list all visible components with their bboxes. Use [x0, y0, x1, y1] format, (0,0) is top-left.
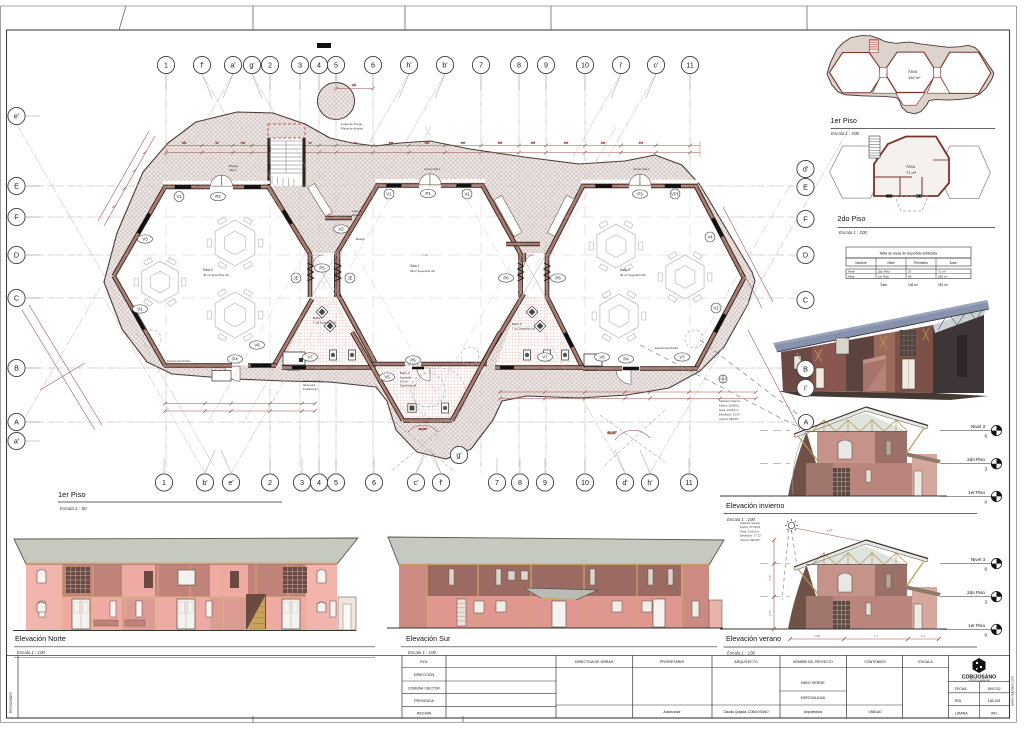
- svg-text:d': d': [622, 478, 628, 487]
- svg-text:g': g': [456, 451, 462, 460]
- svg-text:60.00°: 60.00°: [607, 431, 617, 435]
- svg-text:Baño 1: Baño 1: [313, 316, 323, 320]
- svg-text:Total: Total: [880, 283, 887, 287]
- svg-text:Nivel 3: Nivel 3: [971, 424, 985, 429]
- svg-text:4: 4: [317, 478, 321, 487]
- svg-text:2do Piso: 2do Piso: [967, 590, 985, 595]
- svg-text:www.cobijosano.com: www.cobijosano.com: [1011, 676, 1015, 706]
- svg-text:ARQUITECTO: ARQUITECTO: [734, 660, 758, 664]
- svg-text:B: B: [14, 364, 19, 373]
- svg-text:Nivel: Nivel: [887, 261, 894, 265]
- svg-text:V1: V1: [176, 194, 182, 199]
- svg-text:Arquitectura: Arquitectura: [804, 710, 822, 714]
- svg-text:Accesible: Accesible: [400, 376, 412, 380]
- svg-text:9: 9: [544, 61, 548, 70]
- svg-text:10: 10: [581, 478, 589, 487]
- svg-text:UNIDAD: UNIDAD: [869, 710, 883, 714]
- svg-text:b': b': [202, 478, 208, 487]
- svg-text:Acceso Sala 1: Acceso Sala 1: [424, 167, 441, 171]
- svg-text:7: 7: [479, 61, 483, 70]
- svg-text:8: 8: [517, 61, 521, 70]
- svg-text:h': h': [406, 61, 412, 70]
- svg-text:V1: V1: [137, 307, 143, 312]
- svg-text:Área: Área: [906, 164, 916, 169]
- svg-text:Autorizador: Autorizador: [663, 710, 681, 714]
- svg-text:5: 5: [334, 478, 338, 487]
- svg-text:ESCALA: ESCALA: [918, 660, 933, 664]
- svg-text:1er Piso: 1er Piso: [878, 275, 889, 279]
- svg-text:Elevación Norte: Elevación Norte: [15, 634, 66, 643]
- svg-text:V6: V6: [254, 343, 260, 348]
- svg-text:P1: P1: [425, 191, 431, 196]
- svg-text:2.75: 2.75: [768, 610, 772, 616]
- svg-text:46 m² Superficie útil: 46 m² Superficie útil: [620, 273, 646, 277]
- svg-text:Claudio Quijada, COBIJOSANO: Claudio Quijada, COBIJOSANO: [723, 710, 769, 714]
- svg-text:d': d': [803, 165, 809, 174]
- svg-text:Escala 1 : 200: Escala 1 : 200: [839, 230, 867, 235]
- svg-text:6: 6: [371, 61, 375, 70]
- svg-text:ESPECIALIDAD: ESPECIALIDAD: [801, 696, 826, 700]
- svg-text:46m² Superficie útil: 46m² Superficie útil: [410, 269, 435, 273]
- svg-text:NOMBRE DEL PROYECTO: NOMBRE DEL PROYECTO: [793, 660, 833, 664]
- svg-text:7 m2 Superficie útil: 7 m2 Superficie útil: [512, 327, 535, 331]
- svg-text:Perímetro: Perímetro: [914, 261, 928, 265]
- svg-text:Lugar de Fuego: Lugar de Fuego: [341, 122, 363, 126]
- svg-text:FECHA: FECHA: [955, 687, 967, 691]
- svg-text:Nombre: Nombre: [855, 261, 867, 265]
- svg-text:Escala 1 : 100: Escala 1 : 100: [17, 650, 45, 655]
- svg-text:ROL: ROL: [955, 699, 962, 703]
- svg-text:Tabla de areas de Superficie E: Tabla de areas de Superficie Edificada: [879, 252, 937, 256]
- svg-text:37: 37: [908, 270, 912, 274]
- svg-text:A: A: [804, 420, 809, 427]
- svg-text:4: 4: [317, 61, 321, 70]
- svg-text:A: A: [14, 418, 19, 427]
- svg-text:h': h': [647, 478, 653, 487]
- svg-text:E: E: [14, 182, 19, 191]
- svg-text:Escala 1 : 50: Escala 1 : 50: [60, 506, 87, 511]
- svg-text:C: C: [803, 296, 808, 305]
- svg-text:PROPIETARIO: PROPIETARIO: [660, 660, 684, 664]
- svg-text:V1: V1: [713, 306, 719, 311]
- svg-text:Acceso Sala 3: Acceso Sala 3: [633, 167, 650, 171]
- svg-text:Kitchenette: Kitchenette: [584, 369, 597, 372]
- svg-text:Sala 2: Sala 2: [229, 168, 237, 172]
- svg-text:5: 5: [334, 61, 338, 70]
- svg-text:g': g': [249, 61, 255, 70]
- svg-text:A#1: A#1: [991, 712, 997, 716]
- svg-text:1er Piso: 1er Piso: [58, 490, 86, 499]
- svg-text:Baño 3: Baño 3: [400, 371, 410, 375]
- svg-text:Elevación verano: Elevación verano: [726, 634, 781, 643]
- svg-text:DIRECCIÓN: DIRECCIÓN: [414, 672, 435, 677]
- svg-text:Plaza de Acceso: Plaza de Acceso: [341, 127, 364, 131]
- svg-text:2do Piso: 2do Piso: [878, 270, 890, 274]
- svg-text:7: 7: [495, 478, 499, 487]
- svg-text:D: D: [14, 251, 19, 260]
- svg-text:1er Piso: 1er Piso: [831, 116, 857, 125]
- svg-text:Sala 1: Sala 1: [410, 264, 420, 268]
- svg-text:V3: V3: [142, 237, 148, 242]
- svg-text:7.1: 7.1: [874, 634, 878, 638]
- svg-text:V7: V7: [679, 355, 685, 360]
- svg-text:ROL: ROL: [420, 660, 427, 664]
- svg-text:P3: P3: [637, 192, 643, 197]
- svg-text:REVISIONES: REVISIONES: [9, 692, 13, 713]
- svg-text:7 m2 Superficie útil: 7 m2 Superficie útil: [313, 321, 336, 325]
- svg-text:1: 1: [164, 61, 168, 70]
- svg-text:Escala 1 : 100: Escala 1 : 100: [408, 650, 436, 655]
- svg-text:F: F: [14, 213, 19, 222]
- svg-text:Área: Área: [908, 69, 918, 74]
- svg-text:PROVINCIA: PROVINCIA: [414, 699, 434, 703]
- svg-text:V4: V4: [707, 235, 713, 240]
- svg-text:6: 6: [984, 434, 987, 439]
- svg-text:P5: P5: [319, 266, 325, 271]
- svg-text:46 m² Superficie útil: 46 m² Superficie útil: [203, 273, 229, 277]
- svg-text:E: E: [803, 183, 808, 192]
- svg-text:2: 2: [268, 478, 272, 487]
- svg-text:Espacio para Rocket: Espacio para Rocket: [655, 347, 678, 350]
- svg-text:CONTENIDO: CONTENIDO: [864, 660, 886, 664]
- svg-text:NIDO VERDE: NIDO VERDE: [801, 681, 825, 685]
- svg-text:e': e': [14, 112, 20, 121]
- svg-text:P6: P6: [410, 358, 416, 363]
- svg-text:DIRECTIVA DE OBRAS: DIRECTIVA DE OBRAS: [575, 660, 614, 664]
- svg-text:15/07/22: 15/07/22: [987, 687, 1000, 691]
- svg-text:Chafl o Gabinete: Chafl o Gabinete: [303, 380, 322, 383]
- svg-text:Sala 2: Sala 2: [203, 268, 213, 272]
- svg-text:251 m²: 251 m²: [938, 283, 948, 287]
- svg-text:180 m²: 180 m²: [908, 75, 921, 80]
- svg-text:Escala 1 : 200: Escala 1 : 200: [831, 131, 859, 136]
- svg-text:6: 6: [372, 478, 376, 487]
- svg-text:2.2: 2.2: [921, 634, 925, 638]
- svg-text:106 m²: 106 m²: [908, 283, 918, 287]
- svg-text:Azimut: 336.96°: Azimut: 336.96°: [719, 417, 739, 421]
- svg-text:1: 1: [162, 478, 166, 487]
- svg-text:V7: V7: [307, 355, 313, 360]
- svg-text:c': c': [414, 478, 420, 487]
- svg-text:F: F: [803, 215, 808, 224]
- svg-text:V7: V7: [542, 355, 548, 360]
- svg-text:0: 0: [984, 632, 987, 637]
- svg-text:B: B: [803, 365, 808, 374]
- svg-text:2do Piso: 2do Piso: [838, 214, 866, 223]
- svg-text:2.79: 2.79: [768, 575, 772, 581]
- svg-text:11: 11: [686, 61, 693, 70]
- svg-text:1er Piso: 1er Piso: [968, 623, 985, 628]
- svg-text:71 m²: 71 m²: [938, 270, 946, 274]
- svg-text:5.0 m²: 5.0 m²: [400, 380, 408, 384]
- svg-text:9: 9: [543, 478, 547, 487]
- svg-text:falsos para: falsos para: [303, 384, 316, 387]
- svg-text:V2: V2: [338, 227, 344, 232]
- svg-text:7.46: 7.46: [422, 253, 428, 257]
- svg-text:JE: JE: [294, 276, 299, 281]
- svg-text:c': c': [654, 61, 660, 70]
- svg-text:Bodega: Bodega: [356, 238, 365, 241]
- svg-text:P4: P4: [232, 357, 238, 362]
- svg-text:Bajada: Bajada: [352, 214, 360, 217]
- svg-text:69: 69: [908, 275, 912, 279]
- svg-text:Hora: 13:00 pm: Hora: 13:00 pm: [719, 408, 739, 412]
- svg-text:instalaciones: instalaciones: [303, 388, 318, 391]
- svg-text:3: 3: [298, 61, 302, 70]
- svg-text:180 m²: 180 m²: [938, 275, 947, 279]
- svg-text:P6: P6: [503, 276, 509, 281]
- svg-text:VP1: VP1: [671, 192, 680, 197]
- svg-text:Sala 3: Sala 3: [620, 268, 630, 272]
- svg-text:1er Piso: 1er Piso: [968, 490, 985, 495]
- svg-text:Azimut: 348.45°: Azimut: 348.45°: [740, 538, 760, 542]
- svg-text:3: 3: [300, 478, 304, 487]
- svg-text:158-193: 158-193: [988, 699, 1001, 703]
- svg-text:COMUNA / SECTOR: COMUNA / SECTOR: [408, 687, 440, 691]
- svg-text:Espacio para Rochet: Espacio para Rochet: [167, 360, 191, 363]
- svg-text:Fecha: 21/06/21: Fecha: 21/06/21: [719, 404, 740, 408]
- svg-text:JE: JE: [348, 276, 353, 281]
- svg-text:P2: P2: [215, 194, 221, 199]
- svg-text:2: 2: [268, 61, 272, 70]
- svg-text:0: 0: [984, 499, 987, 504]
- svg-text:6: 6: [984, 567, 987, 572]
- svg-text:a': a': [14, 437, 20, 446]
- svg-text:Área: Área: [848, 275, 855, 279]
- svg-text:3: 3: [984, 600, 987, 605]
- svg-text:Elevación invierno: Elevación invierno: [726, 501, 784, 510]
- svg-text:Kitchenette: Kitchenette: [287, 369, 300, 372]
- svg-text:Área: Área: [950, 261, 957, 265]
- svg-text:V6: V6: [599, 355, 605, 360]
- svg-text:10: 10: [581, 61, 589, 70]
- svg-text:Superficie útil: Superficie útil: [400, 384, 417, 388]
- svg-text:Solsticio Invierno: Solsticio Invierno: [719, 399, 741, 403]
- svg-text:Nivel 3: Nivel 3: [971, 557, 985, 562]
- svg-text:P4: P4: [623, 357, 629, 362]
- svg-text:11: 11: [685, 478, 692, 487]
- svg-text:60.00°: 60.00°: [419, 427, 429, 431]
- svg-text:P6: P6: [555, 276, 561, 281]
- svg-text:2do Piso: 2do Piso: [967, 457, 985, 462]
- svg-text:Lugar de: Lugar de: [352, 210, 362, 213]
- svg-text:1.98: 1.98: [814, 634, 820, 638]
- svg-text:Área: Área: [848, 270, 855, 274]
- svg-text:CONSTRUYE BIENESTAR: CONSTRUYE BIENESTAR: [968, 679, 991, 682]
- svg-text:D: D: [803, 251, 808, 260]
- svg-text:a': a': [230, 61, 236, 70]
- svg-text:8: 8: [518, 478, 522, 487]
- svg-text:71 m²: 71 m²: [906, 170, 917, 175]
- svg-text:Elevación: 31.07°: Elevación: 31.07°: [719, 413, 741, 417]
- svg-text:3: 3: [984, 467, 987, 472]
- svg-text:V1: V1: [386, 192, 392, 197]
- svg-text:V5: V5: [384, 375, 390, 380]
- svg-text:e': e': [228, 478, 234, 487]
- svg-text:C: C: [14, 294, 19, 303]
- svg-text:Elevación Sur: Elevación Sur: [406, 634, 451, 643]
- svg-text:V1: V1: [464, 192, 470, 197]
- svg-text:b': b': [442, 61, 448, 70]
- svg-text:Escala 1 : 100: Escala 1 : 100: [727, 651, 755, 656]
- svg-text:LÁMINA: LÁMINA: [955, 712, 968, 716]
- svg-text:REGIÓN: REGIÓN: [417, 711, 432, 716]
- svg-text:Bodega: Bodega: [229, 164, 239, 168]
- svg-text:Baño 2: Baño 2: [512, 322, 522, 326]
